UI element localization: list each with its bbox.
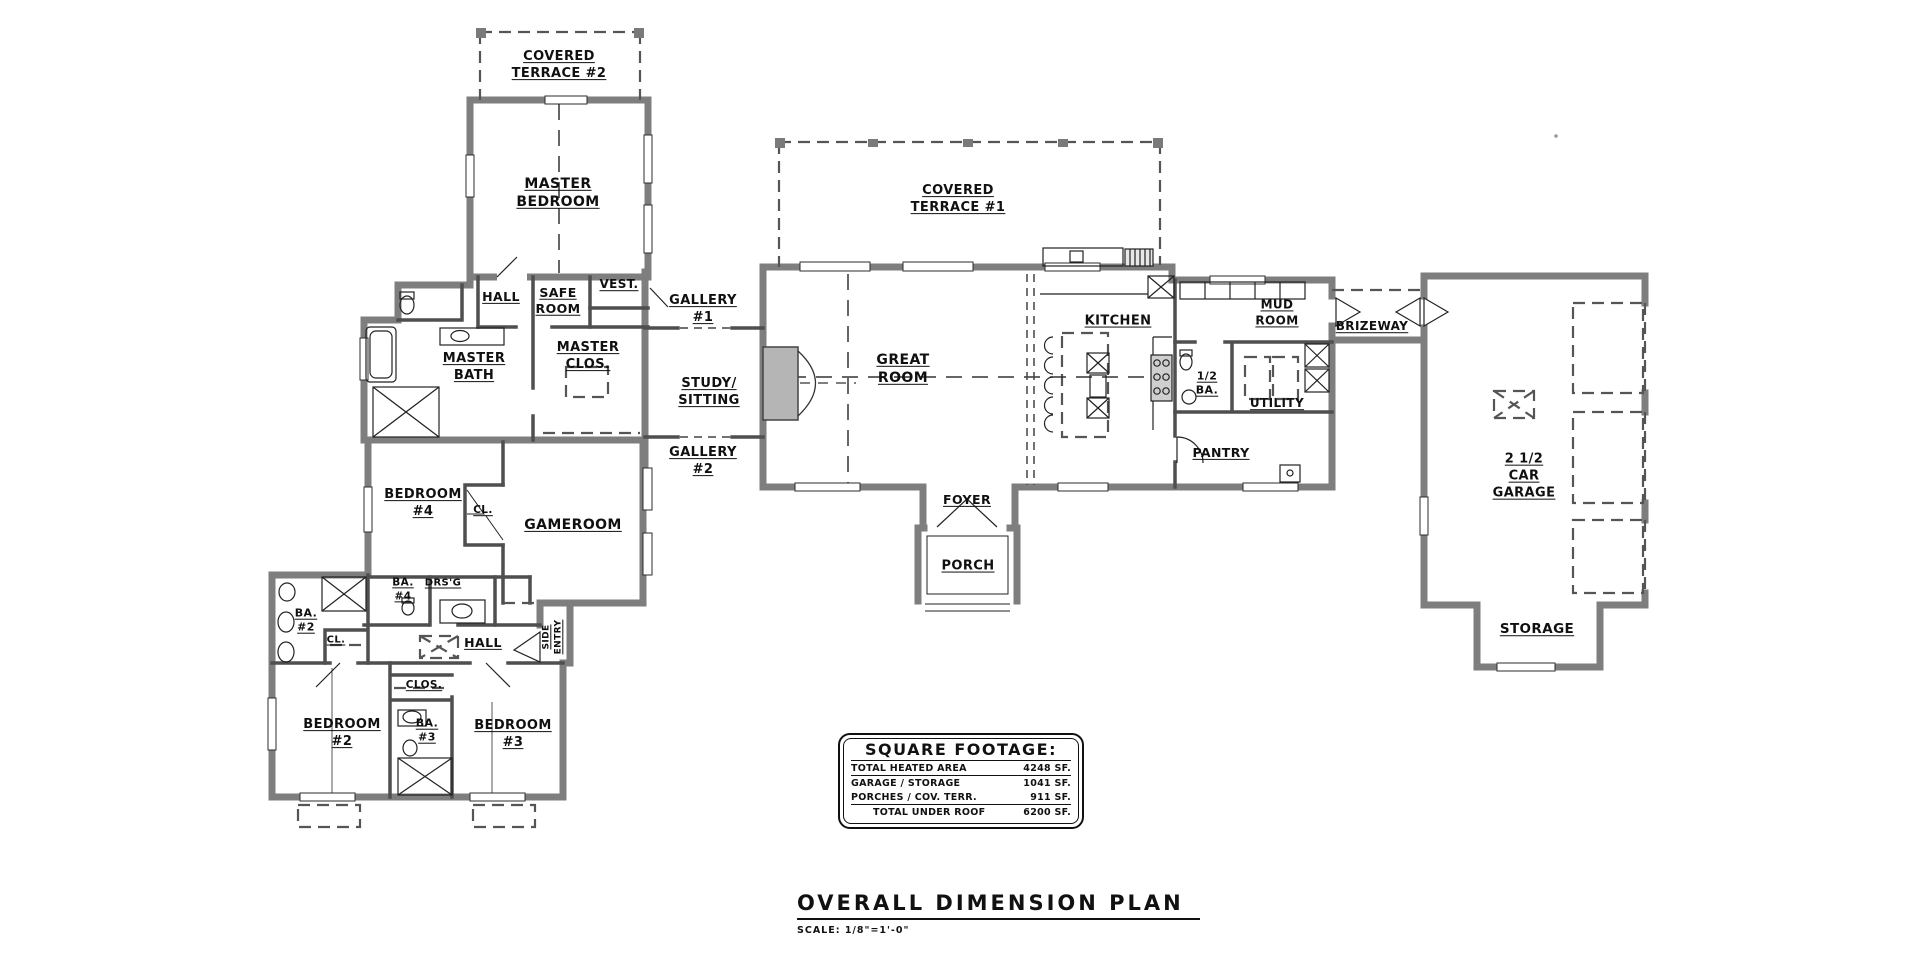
room-label-gallery-2: GALLERY #2 (669, 445, 737, 479)
title-block: OVERALL DIMENSION PLAN SCALE: 1/8"=1'-0" (797, 891, 1200, 936)
sqft-row-total: TOTAL UNDER ROOF 6200 SF. (851, 805, 1071, 819)
room-label-brizeway: BRIZEWAY (1336, 319, 1408, 335)
room-label-covered-terrace-1: COVERED TERRACE #1 (911, 183, 1006, 217)
sqft-label-heated: TOTAL HEATED AREA (851, 763, 967, 774)
sqft-value-total: 6200 SF. (1023, 807, 1071, 818)
room-label-covered-terrace-2: COVERED TERRACE #2 (512, 49, 607, 83)
room-label-foyer: FOYER (943, 492, 991, 508)
sqft-value-heated: 4248 SF. (1023, 763, 1071, 774)
room-label-pantry: PANTRY (1192, 445, 1249, 461)
floor-plan-sheet: COVERED TERRACE #2 MASTER BEDROOM HALL S… (0, 0, 1920, 960)
room-label-gameroom: GAMEROOM (524, 516, 622, 534)
room-label-hall-master: HALL (482, 289, 520, 305)
sqft-row-heated: TOTAL HEATED AREA 4248 SF. (851, 761, 1071, 776)
room-label-bedroom-4: BEDROOM #4 (384, 487, 461, 521)
room-label-gallery-1: GALLERY #1 (669, 293, 737, 327)
room-label-master-clos: MASTER CLOS. (557, 340, 620, 374)
room-label-drsg: DRS'G (425, 577, 461, 590)
room-label-storage: STORAGE (1500, 621, 1574, 639)
room-label-cl-bedroom-4: CL. (473, 504, 493, 518)
square-footage-title: SQUARE FOOTAGE: (851, 740, 1071, 761)
room-label-clos: CLOS. (406, 679, 443, 693)
sqft-label-total: TOTAL UNDER ROOF (873, 807, 985, 818)
room-label-ba-2: BA. #2 (295, 607, 317, 636)
sqft-row-garage: GARAGE / STORAGE 1041 SF. (851, 776, 1071, 790)
room-label-kitchen: KITCHEN (1085, 314, 1152, 331)
room-label-mud-room: MUD ROOM (1255, 297, 1298, 328)
sqft-value-garage: 1041 SF. (1023, 778, 1071, 789)
room-label-vest: VEST. (599, 277, 638, 293)
room-label-garage: 2 1/2 CAR GARAGE (1493, 452, 1556, 503)
room-label-safe-room: SAFE ROOM (536, 285, 581, 318)
dashed-outlines (298, 32, 1645, 827)
sqft-label-porches: PORCHES / COV. TERR. (851, 792, 977, 803)
room-label-cl-ba-2: CL. (327, 634, 346, 647)
room-label-master-bath: MASTER BATH (443, 351, 506, 385)
room-label-porch: PORCH (941, 559, 994, 576)
sqft-label-garage: GARAGE / STORAGE (851, 778, 960, 789)
room-label-master-bedroom: MASTER BEDROOM (516, 175, 599, 211)
room-label-bedroom-3: BEDROOM #3 (474, 718, 551, 752)
room-label-utility: UTILITY (1250, 396, 1304, 412)
room-label-study-sitting: STUDY/ SITTING (678, 376, 739, 410)
room-label-bedroom-2: BEDROOM #2 (303, 717, 380, 751)
sheet-title: OVERALL DIMENSION PLAN (797, 891, 1200, 920)
terrace-posts (476, 28, 1163, 148)
room-label-ba-4: BA. #4 (392, 576, 414, 603)
room-label-great-room: GREAT ROOM (876, 351, 929, 387)
sheet-scale: SCALE: 1/8"=1'-0" (797, 925, 1200, 936)
sqft-row-porches: PORCHES / COV. TERR. 911 SF. (851, 790, 1071, 805)
room-label-ba-3: BA. #3 (416, 717, 438, 746)
square-footage-box: SQUARE FOOTAGE: TOTAL HEATED AREA 4248 S… (838, 733, 1084, 829)
room-label-side-entry: SIDE ENTRY (541, 620, 564, 655)
fireplace (763, 347, 856, 420)
room-label-hall-bedrooms: HALL (464, 635, 502, 651)
sqft-value-porches: 911 SF. (1030, 792, 1071, 803)
room-label-half-ba: 1/2 BA. (1196, 370, 1218, 399)
print-speck (1554, 134, 1558, 138)
square-footage-inner: SQUARE FOOTAGE: TOTAL HEATED AREA 4248 S… (843, 738, 1079, 824)
